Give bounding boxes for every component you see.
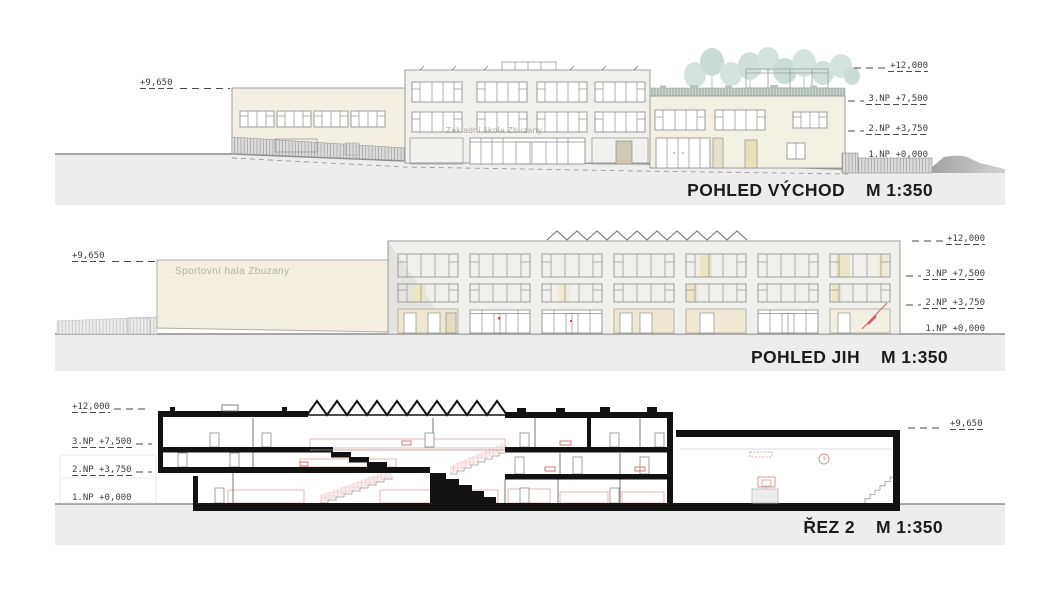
- gym-hall-interior: [680, 449, 893, 503]
- panel-scale: M 1:350: [866, 180, 933, 200]
- panel-title: POHLED JIH: [751, 347, 860, 367]
- panel-scale: M 1:350: [876, 517, 943, 537]
- roof-trees: [684, 47, 860, 88]
- sawtooth-roof-south: [547, 231, 747, 240]
- title-south: POHLED JIH M 1:350: [751, 347, 948, 367]
- level-label: +9,650: [950, 419, 983, 429]
- level-label: +9,650: [140, 78, 173, 88]
- panel-title: POHLED VÝCHOD: [687, 179, 845, 200]
- level-label: 1.NP +0,000: [72, 493, 132, 503]
- panel-east-elevation: +9,650 Základní škola Zbuzany: [55, 47, 1005, 205]
- gym-clock-icon: [819, 454, 829, 464]
- fence-south: [57, 317, 157, 334]
- scoreboard-icon: [750, 452, 772, 457]
- level-markers-east: +12,000 3.NP +7,500 2.NP +3,750 1.NP +0,…: [848, 61, 928, 160]
- level-label: +9,650: [72, 251, 105, 261]
- drawing-sheet: +9,650 Základní škola Zbuzany: [0, 0, 1059, 595]
- level-label: +12,000: [947, 234, 985, 244]
- school-building-south: [388, 231, 900, 334]
- school-building-east: Základní škola Zbuzany: [405, 62, 650, 164]
- level-label: 2.NP +3,750: [925, 298, 985, 308]
- level-label: 1.NP +0,000: [868, 150, 928, 160]
- level-marker-east-left: +9,650: [140, 78, 230, 89]
- level-label: 2.NP +3,750: [868, 124, 928, 134]
- panel-section-2: +12,000 3.NP +7,500 2.NP +3,750 1.NP +0,…: [55, 401, 1005, 545]
- hall-facade-sign: Sportovní hala Zbuzany: [175, 266, 289, 277]
- level-markers-south: +12,000 3.NP +7,500 2.NP +3,750 1.NP +0,…: [906, 234, 985, 334]
- red-furniture-marks: [300, 441, 645, 471]
- sawtooth-roof-section: [307, 401, 507, 415]
- section-drawing: [158, 401, 900, 511]
- roof-ticks: [420, 66, 638, 70]
- level-label: 1.NP +0,000: [925, 324, 985, 334]
- gym-stair-outline: [865, 477, 893, 503]
- level-label: +12,000: [890, 61, 928, 71]
- sports-hall-east: [232, 88, 405, 161]
- architectural-drawing: +9,650 Základní škola Zbuzany: [0, 0, 1059, 595]
- ground-south: [55, 334, 1005, 371]
- basketball-stand-icon: [752, 477, 778, 503]
- level-label: 3.NP +7,500: [72, 437, 132, 447]
- level-marker-section-right: +9,650: [908, 419, 984, 430]
- school-wing-east: [650, 47, 860, 168]
- level-label: 3.NP +7,500: [868, 94, 928, 104]
- level-markers-section-left: +12,000 3.NP +7,500 2.NP +3,750 1.NP +0,…: [72, 402, 152, 503]
- panel-south-elevation: +9,650 Sportovní hala Zbuzany: [55, 231, 1005, 371]
- school-facade-sign: Základní škola Zbuzany: [446, 125, 543, 135]
- level-label: +12,000: [72, 402, 110, 412]
- panel-title: ŘEZ 2: [803, 516, 855, 537]
- sports-hall-south: Sportovní hala Zbuzany: [157, 260, 388, 332]
- level-label: 3.NP +7,500: [925, 269, 985, 279]
- level-label: 2.NP +3,750: [72, 465, 132, 475]
- panel-scale: M 1:350: [881, 347, 948, 367]
- title-east: POHLED VÝCHOD M 1:350: [687, 179, 933, 200]
